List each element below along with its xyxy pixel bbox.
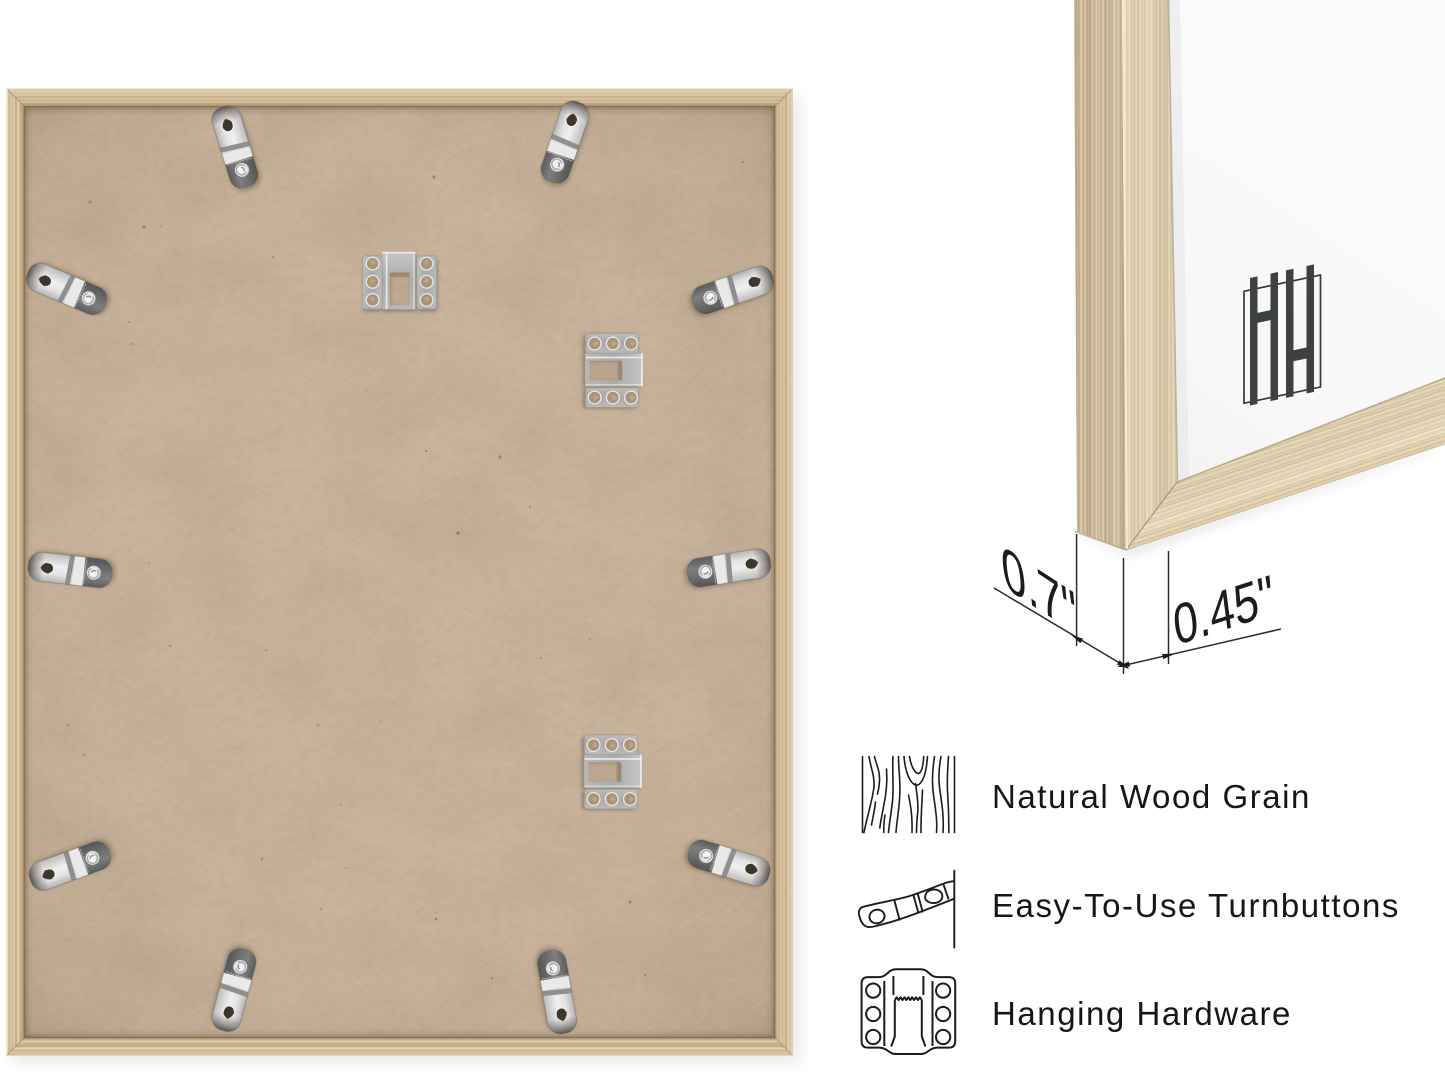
svg-text:0.7": 0.7" — [998, 532, 1082, 651]
svg-text:0.45": 0.45" — [1170, 563, 1278, 658]
